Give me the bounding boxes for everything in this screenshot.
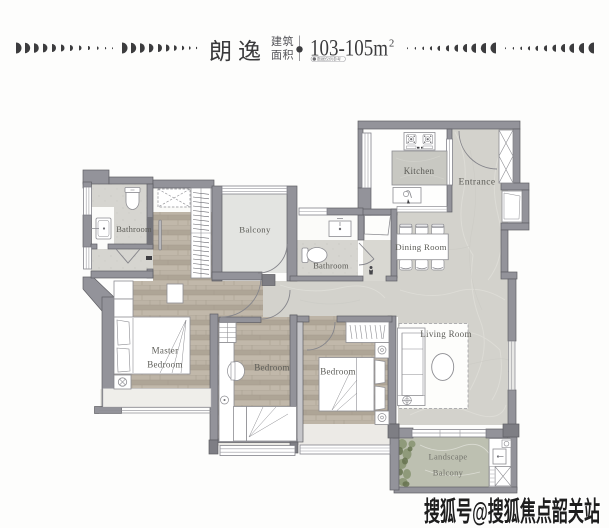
svg-text:Bedroom: Bedroom [254,363,290,373]
svg-text:面积: 面积 [271,49,294,62]
svg-text:建筑: 建筑 [271,34,294,48]
svg-text:Bathroom: Bathroom [116,224,152,234]
svg-text:Dining Room: Dining Room [395,242,446,252]
svg-text:Balcony: Balcony [239,225,271,235]
svg-text:Bathroom: Bathroom [313,261,349,271]
svg-text:Landscape: Landscape [428,452,467,462]
svg-text:Bedroom: Bedroom [147,360,183,370]
svg-text:Kitchen: Kitchen [404,166,435,176]
svg-text:Entrance: Entrance [459,178,496,188]
svg-text:Balcony: Balcony [433,468,464,478]
svg-text:搜狐号@搜狐焦点韶关站: 搜狐号@搜狐焦点韶关站 [424,496,600,527]
svg-text:Master: Master [152,346,179,356]
svg-text:数据仅供参考: 数据仅供参考 [317,56,341,62]
svg-text:Living Room: Living Room [420,329,472,339]
svg-text:Bedroom: Bedroom [320,367,356,377]
svg-text:2: 2 [389,39,394,50]
svg-text:朗逸: 朗逸 [209,39,267,64]
